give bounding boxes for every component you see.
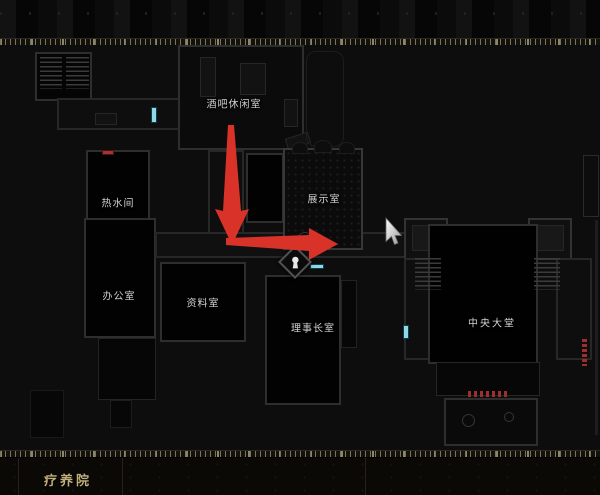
stairs-icon <box>415 258 441 290</box>
footer-divider <box>365 458 366 495</box>
room-hot-water[interactable] <box>86 150 150 220</box>
room-label-central-hall: 中央大堂 <box>468 315 516 330</box>
landing <box>536 225 564 251</box>
exhibition-scallop <box>292 142 308 154</box>
keyhole-glyph <box>289 256 301 271</box>
room-label-bar-lounge: 酒吧休闲室 <box>207 96 262 111</box>
room-label-director: 理事长室 <box>291 320 335 335</box>
furniture <box>284 99 298 127</box>
room-label-exhibition: 展示室 <box>308 191 341 206</box>
room-stairwell-topleft[interactable] <box>35 52 92 101</box>
map-area[interactable]: 酒吧休闲室 热水间 办公室 资料室 展示室 <box>0 45 600 450</box>
footer-divider <box>122 458 123 495</box>
red-door-marker <box>102 150 114 155</box>
room-office[interactable] <box>84 218 156 338</box>
room-office-annex[interactable] <box>98 338 156 400</box>
exhibition-scallop <box>314 140 332 153</box>
furniture <box>95 113 117 125</box>
door-marker <box>310 264 324 269</box>
corridor-stub <box>110 400 132 428</box>
stairs-icon <box>40 57 62 89</box>
room-small-unlabeled[interactable] <box>246 153 284 223</box>
room-below-central-hall[interactable] <box>444 398 538 446</box>
room-director[interactable] <box>265 275 341 405</box>
game-map-screen: 酒吧休闲室 热水间 办公室 资料室 展示室 <box>0 0 600 495</box>
red-dotted-barrier-v <box>582 339 587 366</box>
map-outer-wall <box>595 220 598 435</box>
corridor-lounge-down[interactable] <box>208 150 244 234</box>
room-small-bottomleft <box>30 390 64 438</box>
footer-divider <box>18 458 19 495</box>
furniture <box>200 57 216 97</box>
exhibit-symbol <box>297 232 313 248</box>
stairs-icon <box>66 57 89 89</box>
furniture <box>240 63 266 95</box>
stairs-icon <box>534 258 560 290</box>
room-small-topright <box>583 155 599 217</box>
map-ruler-bottom <box>0 450 600 458</box>
room-central-hall[interactable] <box>428 224 538 364</box>
room-director-annex <box>341 280 357 348</box>
exhibition-scallop <box>339 142 355 154</box>
room-label-hot-water: 热水间 <box>102 195 135 210</box>
map-edge-decoration <box>306 51 344 147</box>
map-symbol <box>462 414 475 427</box>
area-name-label: 疗养院 <box>44 470 92 489</box>
exhibit-symbol <box>312 237 325 250</box>
red-dotted-barrier-h <box>468 391 508 397</box>
room-label-archive: 资料室 <box>187 295 220 310</box>
room-label-office: 办公室 <box>103 288 136 303</box>
door-marker <box>151 107 157 123</box>
map-symbol <box>504 412 514 422</box>
door-marker <box>403 325 409 339</box>
top-texture-band <box>0 0 600 38</box>
top-texture-dots <box>0 12 600 15</box>
